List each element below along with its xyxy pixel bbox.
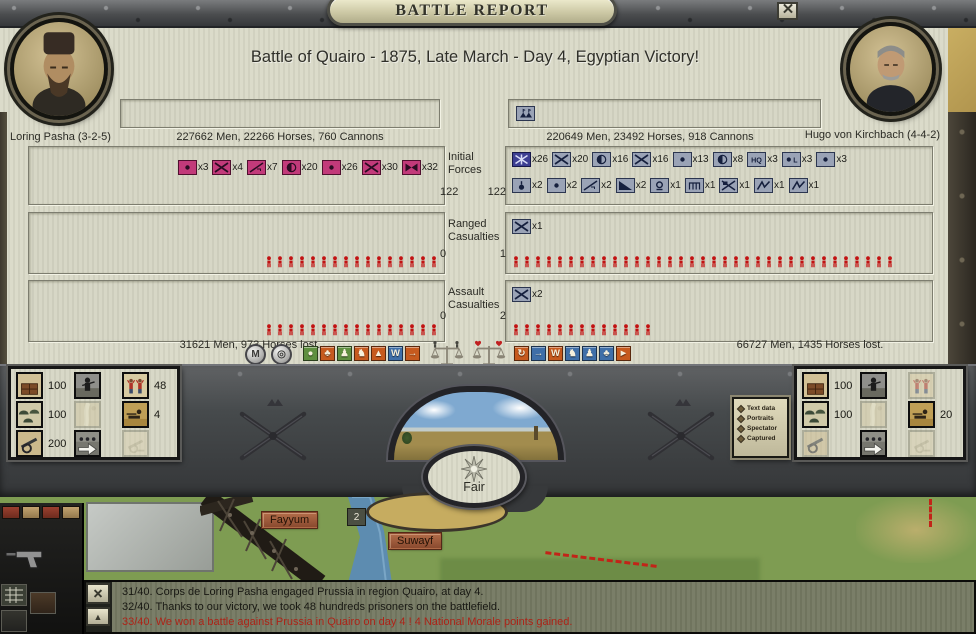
casualty-figure-icon: [309, 324, 317, 336]
tile-road[interactable]: [74, 401, 101, 428]
svg-text:L: L: [793, 158, 798, 165]
casualty-figure-icon: [353, 256, 361, 268]
region-label-suwayf[interactable]: Suwayf: [389, 533, 441, 549]
close-icon: [92, 588, 104, 599]
unit-count: x1: [809, 180, 820, 191]
casualty-figure-icon: [419, 256, 427, 268]
right-reserve-box: [508, 99, 821, 128]
casualty-figure-icon: [853, 256, 861, 268]
unit-chip-half: x8: [713, 152, 744, 167]
unit-chip-half: x16: [592, 152, 628, 167]
casualty-figure-icon: [534, 256, 542, 268]
left-ranged-figures: [265, 256, 438, 268]
tile-count: 100: [45, 372, 72, 399]
casualty-figure-icon: [809, 256, 817, 268]
bullet-diamond-icon: [737, 404, 745, 412]
casualty-figure-icon: [644, 324, 652, 336]
unit-chip-drop: x2: [512, 178, 543, 193]
supply-stat-icon[interactable]: ▲: [371, 346, 386, 361]
unit-count: x1: [774, 180, 785, 191]
casualty-figure-icon: [688, 256, 696, 268]
tile-artillery[interactable]: [122, 430, 149, 457]
unit-chip-lightning: x1: [789, 178, 820, 193]
casualty-figure-icon: [397, 324, 405, 336]
battle-headline: Battle of Quairo - 1875, Late March - Da…: [60, 48, 890, 67]
svg-text:HQ: HQ: [751, 155, 762, 164]
casualty-figure-icon: [721, 256, 729, 268]
casualty-figure-icon: [567, 324, 575, 336]
left-assault-figures: [265, 324, 438, 336]
unit-chip-x: x20: [552, 152, 588, 167]
unit-chip-hq: HQx3: [747, 152, 778, 167]
unit-chip-x: x4: [212, 160, 243, 175]
unit-chip-dot-l: Lx3: [782, 152, 813, 167]
unit-count: x2: [601, 180, 612, 191]
left-assault-box: [28, 280, 445, 342]
unit-symbol-hq: HQ: [747, 152, 766, 167]
left-commander-portrait: [10, 18, 108, 120]
log-scroll-up-button[interactable]: ▲: [86, 607, 110, 626]
right-crossed-rifles-emblem: [634, 396, 726, 471]
unit-symbol-lightning: [754, 178, 773, 193]
side-button-text-data[interactable]: Text data: [738, 405, 783, 412]
left-reserve-box: [120, 99, 440, 128]
casualty-figure-icon: [886, 256, 894, 268]
tile-soldier[interactable]: [860, 372, 887, 399]
map-toggle-button[interactable]: M: [245, 344, 266, 365]
unit-count: x1: [705, 180, 716, 191]
casualty-figure-icon: [567, 256, 575, 268]
unit-count: x32: [422, 162, 438, 173]
close-button[interactable]: [777, 2, 798, 20]
unit-symbol-dot-l: L: [782, 152, 801, 167]
right-ranged-units: x1: [512, 219, 543, 234]
casualty-figure-icon: [298, 256, 306, 268]
unit-count: x2: [567, 180, 578, 191]
casualty-figure-icon: [556, 324, 564, 336]
left-commander-label: Loring Pasha (3-2-5): [10, 131, 111, 143]
close-icon: [781, 2, 795, 20]
initial-left-value: 122: [440, 186, 464, 198]
casualty-figure-icon: [408, 324, 416, 336]
casualty-figure-icon: [633, 324, 641, 336]
unit-count: x7: [267, 162, 278, 173]
map-background-sliver: [948, 28, 976, 112]
up-arrow-icon: ▲: [94, 612, 103, 622]
pursuit-stat-icon[interactable]: ►: [616, 346, 631, 361]
unit-count: x1: [739, 180, 750, 191]
minaret: [534, 426, 538, 440]
tile-road[interactable]: [860, 401, 887, 428]
casualty-figure-icon: [364, 256, 372, 268]
side-button-portraits[interactable]: Portraits: [738, 415, 783, 422]
ledger-icon[interactable]: [2, 506, 20, 519]
tile-advance[interactable]: [74, 430, 101, 457]
morale-stat-icon[interactable]: ♣: [599, 346, 614, 361]
casualty-figure-icon: [655, 256, 663, 268]
unit-chip-x: x2: [512, 287, 543, 302]
morale-stat-icon[interactable]: ♣: [320, 346, 335, 361]
men-stat-icon[interactable]: W: [548, 346, 563, 361]
unit-symbol-x: [632, 152, 651, 167]
unit-count: x3: [198, 162, 209, 173]
casualty-figure-icon: [375, 324, 383, 336]
unit-count: x3: [802, 154, 813, 165]
side-button-label: Spectator: [747, 425, 777, 432]
casualty-figure-icon: [710, 256, 718, 268]
right-commander-portrait: [846, 22, 936, 116]
unit-chip-dot: x3: [178, 160, 209, 175]
casualty-figure-icon: [287, 324, 295, 336]
casualty-figure-icon: [787, 256, 795, 268]
log-message: 33/40. We won a battle against Prussia i…: [122, 615, 964, 630]
unit-symbol-x: [512, 219, 531, 234]
initial-forces-label: Initial Forces: [448, 151, 504, 176]
casualty-figure-icon: [743, 256, 751, 268]
casualty-figure-icon: [644, 256, 652, 268]
unit-symbol-x: [212, 160, 231, 175]
casualty-figure-icon: [820, 256, 828, 268]
unit-count: x2: [636, 180, 647, 191]
left-commander-bust: [14, 22, 104, 116]
right-initial-units-row2: x2x2x2x2x1x1x1x1x1: [512, 178, 819, 193]
tile-count: 100: [45, 401, 72, 428]
unit-symbol-diag-l: [247, 160, 266, 175]
right-reserve-units: [516, 106, 535, 121]
unit-symbol-bridge: [685, 178, 704, 193]
tile-prisoners[interactable]: [908, 372, 935, 399]
panel-spacer: [103, 430, 120, 457]
casualty-figure-icon: [512, 256, 520, 268]
unit-symbol-x: [552, 152, 571, 167]
unit-symbol-filled-diag: [616, 178, 635, 193]
casualty-figure-icon: [430, 324, 438, 336]
unit-count-badge: 2: [347, 508, 366, 526]
ledger-icon[interactable]: [42, 506, 60, 519]
unit-chip-x: x1: [512, 219, 543, 234]
unit-symbol-lamp: [650, 178, 669, 193]
assault-casualties-label: Assault Casualties: [448, 286, 504, 311]
tile-count: 100: [831, 401, 858, 428]
unit-symbol-star-x: [512, 152, 531, 167]
tree: [402, 432, 412, 444]
bullet-diamond-icon: [737, 434, 745, 442]
casualty-figure-icon: [287, 256, 295, 268]
toolbar-right-icons: ↻→W♞♟♣►: [514, 346, 631, 361]
unit-count: x26: [532, 154, 548, 165]
unit-count: x2: [532, 180, 543, 191]
casualty-figure-icon: [699, 256, 707, 268]
casualty-figure-icon: [622, 324, 630, 336]
ranged-casualties-label: Ranged Casualties: [448, 218, 504, 243]
unit-chip-diag-l: x2: [581, 178, 612, 193]
report-option-buttons: Text dataPortraitsSpectatorCaptured: [732, 397, 789, 458]
sunburst-icon: [461, 456, 487, 482]
bullet-diamond-icon: [737, 424, 745, 432]
unit-symbol-x-flag: [719, 178, 738, 193]
tile-count: [937, 372, 961, 399]
unit-count: x1: [670, 180, 681, 191]
casualty-figure-icon: [331, 256, 339, 268]
right-assault-units: x2: [512, 287, 543, 302]
casualty-figure-icon: [298, 324, 306, 336]
unit-count: x20: [302, 162, 318, 173]
desert-terrain: [856, 497, 976, 563]
right-commander-label: Hugo von Kirchbach (4-4-2): [758, 129, 940, 141]
panel-spacer: [889, 401, 906, 428]
casualty-figure-icon: [842, 256, 850, 268]
casualty-figure-icon: [798, 256, 806, 268]
panel-spacer: [103, 401, 120, 428]
left-crossed-rifles-emblem: [226, 396, 318, 471]
casualty-figure-icon: [622, 256, 630, 268]
cavalry-stat-icon[interactable]: ♞: [565, 346, 580, 361]
unit-symbol-half: [282, 160, 301, 175]
panel-spacer: [889, 372, 906, 399]
unit-symbol-x: [512, 287, 531, 302]
unit-chip-dot: x3: [816, 152, 847, 167]
unit-count: x3: [767, 154, 778, 165]
casualty-figure-icon: [677, 256, 685, 268]
tile-artillery[interactable]: [908, 430, 935, 457]
unit-count: x1: [532, 221, 543, 232]
bridge-structure: [200, 497, 355, 583]
unit-symbol-dot: [673, 152, 692, 167]
unit-symbol-dot: [547, 178, 566, 193]
tile-supplies[interactable]: [802, 372, 829, 399]
right-assault-figures: [512, 324, 652, 336]
casualty-figure-icon: [342, 324, 350, 336]
casualty-figure-icon: [309, 256, 317, 268]
unit-symbol-x: [362, 160, 381, 175]
unit-chip-half: x20: [282, 160, 318, 175]
casualty-figure-icon: [611, 324, 619, 336]
unit-chip-dot: x26: [322, 160, 358, 175]
casualty-figure-icon: [776, 256, 784, 268]
unit-chip-bridge: x1: [685, 178, 716, 193]
casualty-figure-icon: [600, 324, 608, 336]
casualty-figure-icon: [375, 256, 383, 268]
casualty-figure-icon: [633, 256, 641, 268]
cloud: [492, 396, 548, 420]
casualty-figure-icon: [600, 256, 608, 268]
casualty-figure-icon: [523, 256, 531, 268]
tile-cannon[interactable]: [802, 430, 829, 457]
casualty-figure-icon: [875, 256, 883, 268]
right-commander-bust: [850, 26, 932, 112]
weather-gauge: Fair: [423, 446, 525, 508]
unit-count: x4: [232, 162, 243, 173]
sidebar-tool-icon[interactable]: [30, 592, 56, 614]
unit-chip-filled-diag: x2: [616, 178, 647, 193]
unit-chip-x-flag: x1: [719, 178, 750, 193]
casualty-figure-icon: [408, 256, 416, 268]
pistol-icon[interactable]: [3, 543, 45, 573]
weather-label: Fair: [463, 480, 485, 494]
casualty-figure-icon: [397, 256, 405, 268]
cloud: [412, 400, 456, 420]
tile-advance[interactable]: [860, 430, 887, 457]
unit-symbol-dot: [178, 160, 197, 175]
casualty-figure-icon: [732, 256, 740, 268]
toolbar-round-buttons: M◎: [245, 344, 292, 365]
unit-chip-dot: x13: [673, 152, 709, 167]
calendar-grid-icon[interactable]: [1, 584, 27, 606]
right-losses-label: 66727 Men, 1435 Horses lost.: [645, 339, 975, 351]
side-button-label: Portraits: [747, 415, 774, 422]
log-close-button[interactable]: [86, 583, 110, 604]
unit-count: x16: [612, 154, 628, 165]
unit-count: x2: [532, 289, 543, 300]
unit-chip-bowtie: x32: [402, 160, 438, 175]
casualty-figure-icon: [578, 324, 586, 336]
target-toggle-button[interactable]: ◎: [271, 344, 292, 365]
battle-report-screen: BATTLE REPORT Battle of Quairo - 1875, L…: [0, 0, 976, 634]
tile-count: 4: [151, 401, 175, 428]
casualty-figure-icon: [364, 324, 372, 336]
right-initial-units-row1: x26x20x16x16x13x8HQx3Lx3x3: [512, 152, 847, 167]
assault-right-value: 2: [482, 310, 506, 322]
left-initial-forces-box: x3x4x7x20x26x30x32: [28, 146, 445, 205]
casualty-figure-icon: [545, 324, 553, 336]
casualty-figure-icon: [276, 324, 284, 336]
panel-right-frame: [948, 112, 976, 364]
casualty-figure-icon: [666, 256, 674, 268]
panel-spacer: [889, 430, 906, 457]
tile-supplies[interactable]: [16, 372, 43, 399]
unit-count: x30: [382, 162, 398, 173]
unit-chip-lamp: x1: [650, 178, 681, 193]
ranged-right-value: 1: [482, 248, 506, 260]
unit-count: x3: [836, 154, 847, 165]
casualty-figure-icon: [578, 256, 586, 268]
casualty-figure-icon: [320, 324, 328, 336]
unit-symbol-lightning: [789, 178, 808, 193]
casualty-figure-icon: [611, 256, 619, 268]
unit-symbol-half: [713, 152, 732, 167]
side-button-captured[interactable]: Captured: [738, 435, 783, 442]
side-button-spectator[interactable]: Spectator: [738, 425, 783, 432]
tile-count: 48: [151, 372, 175, 399]
unit-chip-lightning: x1: [754, 178, 785, 193]
battle-report-title: BATTLE REPORT: [327, 0, 617, 26]
ledger-icon[interactable]: [62, 506, 80, 519]
tile-skirmisher[interactable]: [122, 401, 149, 428]
left-army-stats: 227662 Men, 22266 Horses, 760 Cannons: [110, 131, 450, 143]
border-dashed-line: [929, 499, 932, 527]
unit-symbol-camp: [516, 106, 535, 121]
casualty-figure-icon: [831, 256, 839, 268]
casualty-figure-icon: [765, 256, 773, 268]
region-label-fayyum[interactable]: Fayyum: [262, 512, 317, 528]
casualty-figure-icon: [419, 324, 427, 336]
unit-symbol-half: [592, 152, 611, 167]
sidebar-tool-icon[interactable]: [1, 610, 27, 632]
tile-soldier[interactable]: [74, 372, 101, 399]
log-messages: 31/40. Corps de Loring Pasha engaged Pru…: [112, 582, 974, 632]
tile-tents[interactable]: [16, 401, 43, 428]
men-stat-icon[interactable]: W: [388, 346, 403, 361]
ledger-icon[interactable]: [22, 506, 40, 519]
retreat-stat-icon[interactable]: ↻: [514, 346, 529, 361]
unit-count: x16: [652, 154, 668, 165]
tile-count: [831, 430, 858, 457]
unit-symbol-bowtie: [402, 160, 421, 175]
unit-symbol-drop: [512, 178, 531, 193]
casualty-figure-icon: [754, 256, 762, 268]
right-initial-forces-box: x26x20x16x16x13x8HQx3Lx3x3 x2x2x2x2x1x1x…: [505, 146, 933, 205]
tile-prisoners[interactable]: [122, 372, 149, 399]
casualty-figure-icon: [430, 256, 438, 268]
casualty-figure-icon: [512, 324, 520, 336]
unit-count: x26: [342, 162, 358, 173]
unit-chip-x: x16: [632, 152, 668, 167]
tile-skirmisher[interactable]: [908, 401, 935, 428]
casualty-figure-icon: [534, 324, 542, 336]
infantry-stat-icon[interactable]: ♟: [582, 346, 597, 361]
casualty-figure-icon: [556, 256, 564, 268]
casualty-figure-icon: [589, 324, 597, 336]
right-unit-panel: 10010020: [794, 366, 966, 460]
unit-count: x8: [733, 154, 744, 165]
casualty-figure-icon: [589, 256, 597, 268]
casualty-figure-icon: [342, 256, 350, 268]
unit-chip-x: x30: [362, 160, 398, 175]
casualty-figure-icon: [864, 256, 872, 268]
unit-count: x20: [572, 154, 588, 165]
panel-spacer: [103, 372, 120, 399]
panel-left-frame: [0, 112, 7, 364]
casualty-figure-icon: [353, 324, 361, 336]
left-initial-units: x3x4x7x20x26x30x32: [178, 160, 438, 175]
tile-tents[interactable]: [802, 401, 829, 428]
tile-cannon[interactable]: [16, 430, 43, 457]
assault-left-value: 0: [440, 310, 464, 322]
casualty-figure-icon: [265, 324, 273, 336]
left-unit-panel: 100481004200: [8, 366, 180, 460]
log-message: 31/40. Corps de Loring Pasha engaged Pru…: [122, 585, 964, 600]
tile-count: 20: [937, 401, 961, 428]
fog-of-war: [86, 502, 214, 572]
unit-chip-dot: x2: [547, 178, 578, 193]
cohesion-stat-icon[interactable]: ●: [303, 346, 318, 361]
advance-stat-icon[interactable]: →: [405, 346, 420, 361]
casualty-figure-icon: [265, 256, 273, 268]
side-button-label: Captured: [747, 435, 776, 442]
unit-chip-star-x: x26: [512, 152, 548, 167]
infantry-stat-icon[interactable]: ♟: [337, 346, 352, 361]
unit-count: x13: [693, 154, 709, 165]
advance-stat-icon[interactable]: →: [531, 346, 546, 361]
tile-count: 200: [45, 430, 72, 457]
casualty-figure-icon: [386, 324, 394, 336]
toolbar-left-icons: ●♣♟♞▲W→: [303, 346, 420, 361]
right-assault-box: x2: [505, 280, 933, 342]
initial-right-value: 122: [482, 186, 506, 198]
unit-symbol-diag-l: [581, 178, 600, 193]
casualty-figure-icon: [276, 256, 284, 268]
casualty-figure-icon: [545, 256, 553, 268]
cavalry-stat-icon[interactable]: ♞: [354, 346, 369, 361]
tile-count: [937, 430, 961, 457]
ranged-left-value: 0: [440, 248, 464, 260]
log-message: 32/40. Thanks to our victory, we took 48…: [122, 600, 964, 615]
left-ranged-box: [28, 212, 445, 274]
casualty-figure-icon: [331, 324, 339, 336]
tile-count: [151, 430, 175, 457]
unit-chip-diag-l: x7: [247, 160, 278, 175]
right-ranged-box: x1: [505, 212, 933, 274]
